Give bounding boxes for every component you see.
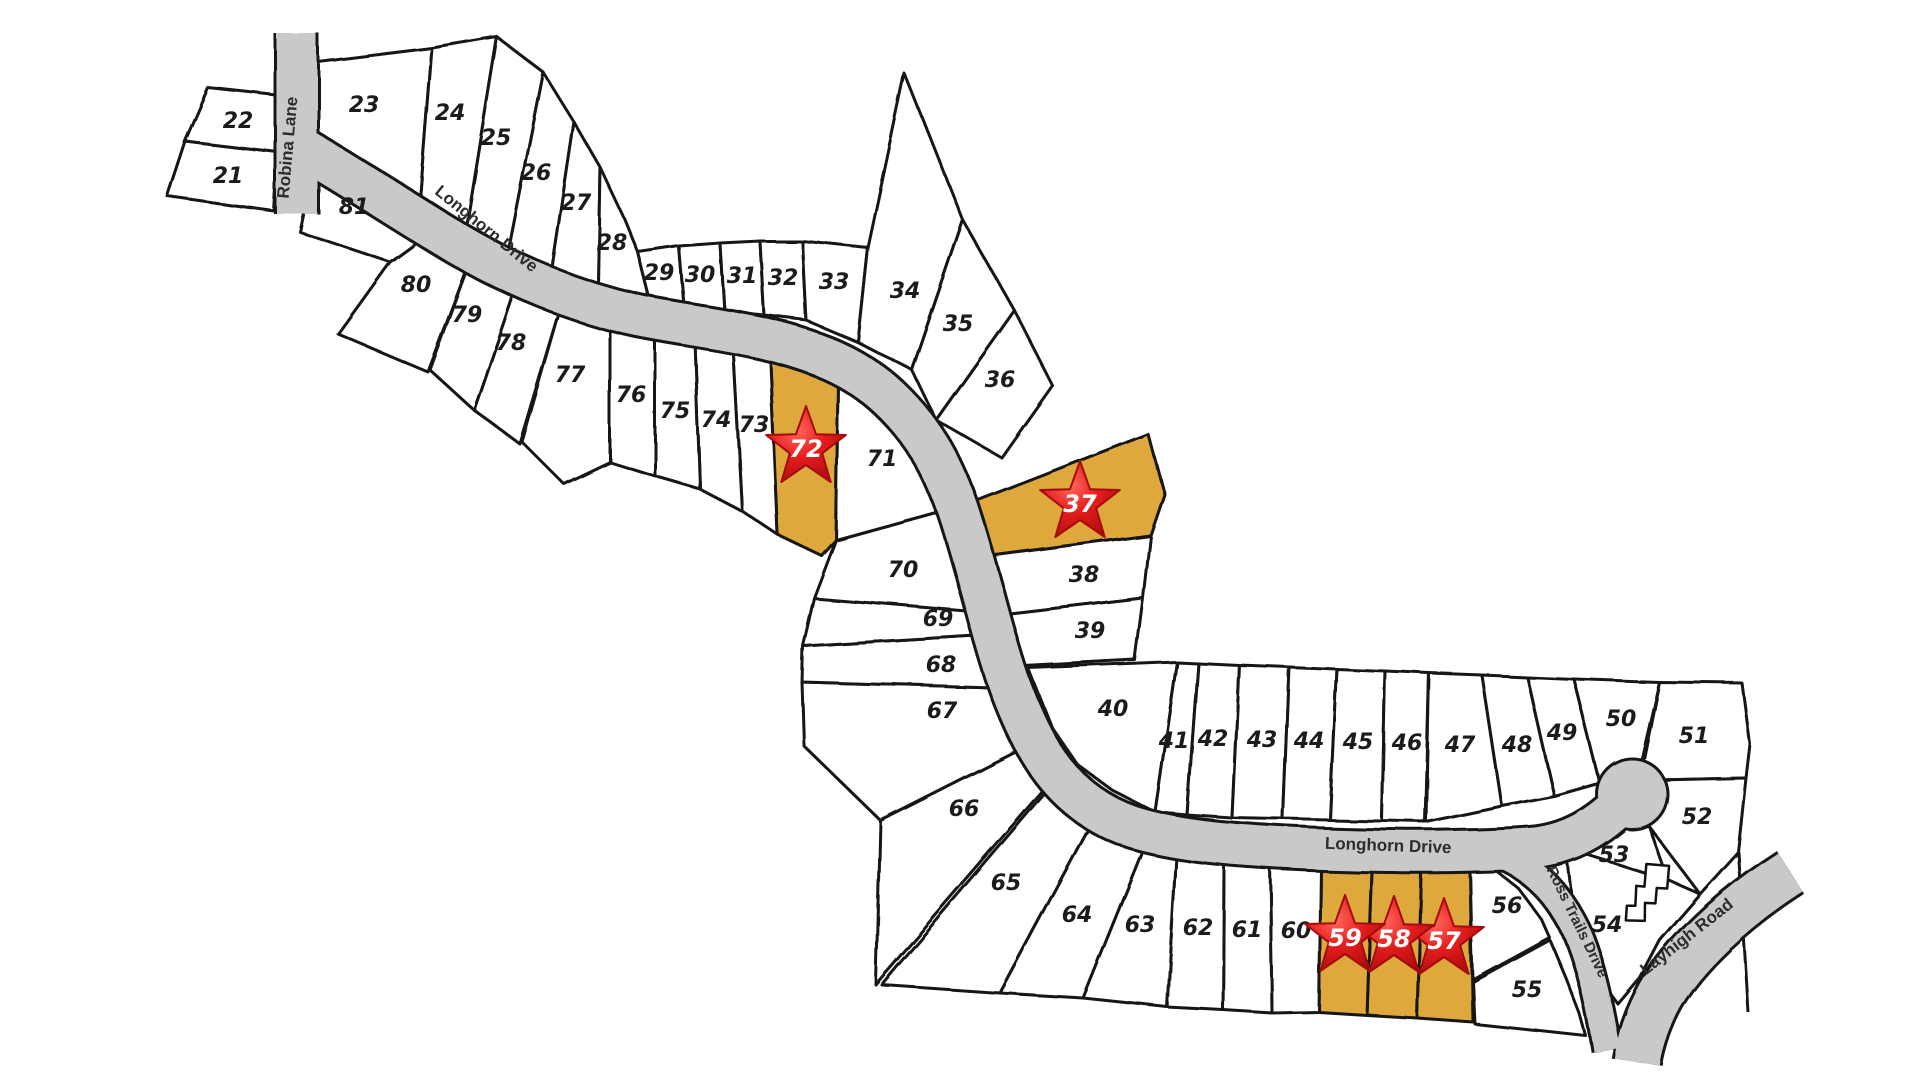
lot-label-62: 62 bbox=[1183, 916, 1214, 941]
lot-label-79: 79 bbox=[452, 303, 483, 328]
lot-label-75: 75 bbox=[660, 399, 691, 424]
lot-label-66: 66 bbox=[949, 797, 980, 822]
lot-label-55: 55 bbox=[1512, 978, 1543, 1003]
lot-label-71: 71 bbox=[867, 447, 898, 472]
lot-label-40: 40 bbox=[1097, 697, 1129, 722]
star-label-72: 72 bbox=[789, 435, 822, 463]
lot-label-31: 31 bbox=[727, 264, 758, 289]
lot-label-77: 77 bbox=[555, 363, 586, 388]
lot-label-73: 73 bbox=[739, 413, 770, 438]
lot-label-60: 60 bbox=[1281, 919, 1312, 944]
lot-label-52: 52 bbox=[1682, 805, 1713, 830]
lot-label-46: 46 bbox=[1391, 731, 1423, 756]
lot-label-33: 33 bbox=[819, 270, 850, 295]
lot-label-48: 48 bbox=[1501, 733, 1533, 758]
lot-label-70: 70 bbox=[888, 558, 919, 583]
lot-label-45: 45 bbox=[1342, 730, 1374, 755]
lot-label-41: 41 bbox=[1158, 729, 1190, 754]
lot-label-68: 68 bbox=[926, 653, 957, 678]
lot-label-25: 25 bbox=[481, 126, 512, 151]
lot-label-44: 44 bbox=[1293, 729, 1325, 754]
lot-label-76: 76 bbox=[616, 383, 647, 408]
star-label-59: 59 bbox=[1328, 924, 1361, 952]
lot-label-35: 35 bbox=[943, 312, 974, 337]
culdesac bbox=[1598, 760, 1666, 828]
lot-label-38: 38 bbox=[1069, 563, 1100, 588]
lot-label-27: 27 bbox=[561, 191, 592, 216]
lot-label-42: 42 bbox=[1197, 727, 1229, 752]
lot-label-28: 28 bbox=[597, 231, 628, 256]
lot-label-53: 53 bbox=[1599, 843, 1630, 868]
lot-label-63: 63 bbox=[1125, 913, 1156, 938]
lot-label-23: 23 bbox=[349, 93, 380, 118]
lot-label-65: 65 bbox=[991, 871, 1022, 896]
lot-label-51: 51 bbox=[1679, 724, 1710, 749]
lot-label-43: 43 bbox=[1246, 728, 1278, 753]
lot-label-78: 78 bbox=[496, 331, 527, 356]
lot-label-64: 64 bbox=[1062, 903, 1093, 928]
lot-label-34: 34 bbox=[890, 279, 921, 304]
lot-label-29: 29 bbox=[644, 261, 675, 286]
lot-label-30: 30 bbox=[685, 263, 716, 288]
plat-map-svg: 2122232425262728293031323334353638394041… bbox=[0, 0, 1920, 1080]
lot-label-24: 24 bbox=[435, 101, 466, 126]
lot-label-67: 67 bbox=[927, 699, 958, 724]
lot-label-56: 56 bbox=[1492, 894, 1523, 919]
star-label-57: 57 bbox=[1427, 927, 1461, 955]
star-label-58: 58 bbox=[1377, 925, 1410, 953]
lot-label-47: 47 bbox=[1444, 733, 1476, 758]
lot-label-69: 69 bbox=[923, 607, 954, 632]
lot-label-21: 21 bbox=[213, 164, 244, 189]
lot-label-81: 81 bbox=[339, 195, 370, 220]
lot-label-26: 26 bbox=[521, 161, 552, 186]
lot-label-61: 61 bbox=[1232, 918, 1263, 943]
plat-map: 2122232425262728293031323334353638394041… bbox=[0, 0, 1920, 1080]
lot-label-49: 49 bbox=[1546, 721, 1578, 746]
lot-label-54: 54 bbox=[1592, 913, 1623, 938]
lot-label-22: 22 bbox=[223, 109, 254, 134]
lot-label-36: 36 bbox=[985, 368, 1016, 393]
lot-label-39: 39 bbox=[1075, 619, 1106, 644]
lot-label-32: 32 bbox=[768, 266, 799, 291]
lot-label-50: 50 bbox=[1606, 707, 1637, 732]
lot-label-74: 74 bbox=[701, 408, 732, 433]
lot-label-80: 80 bbox=[401, 273, 432, 298]
star-label-37: 37 bbox=[1063, 490, 1097, 518]
